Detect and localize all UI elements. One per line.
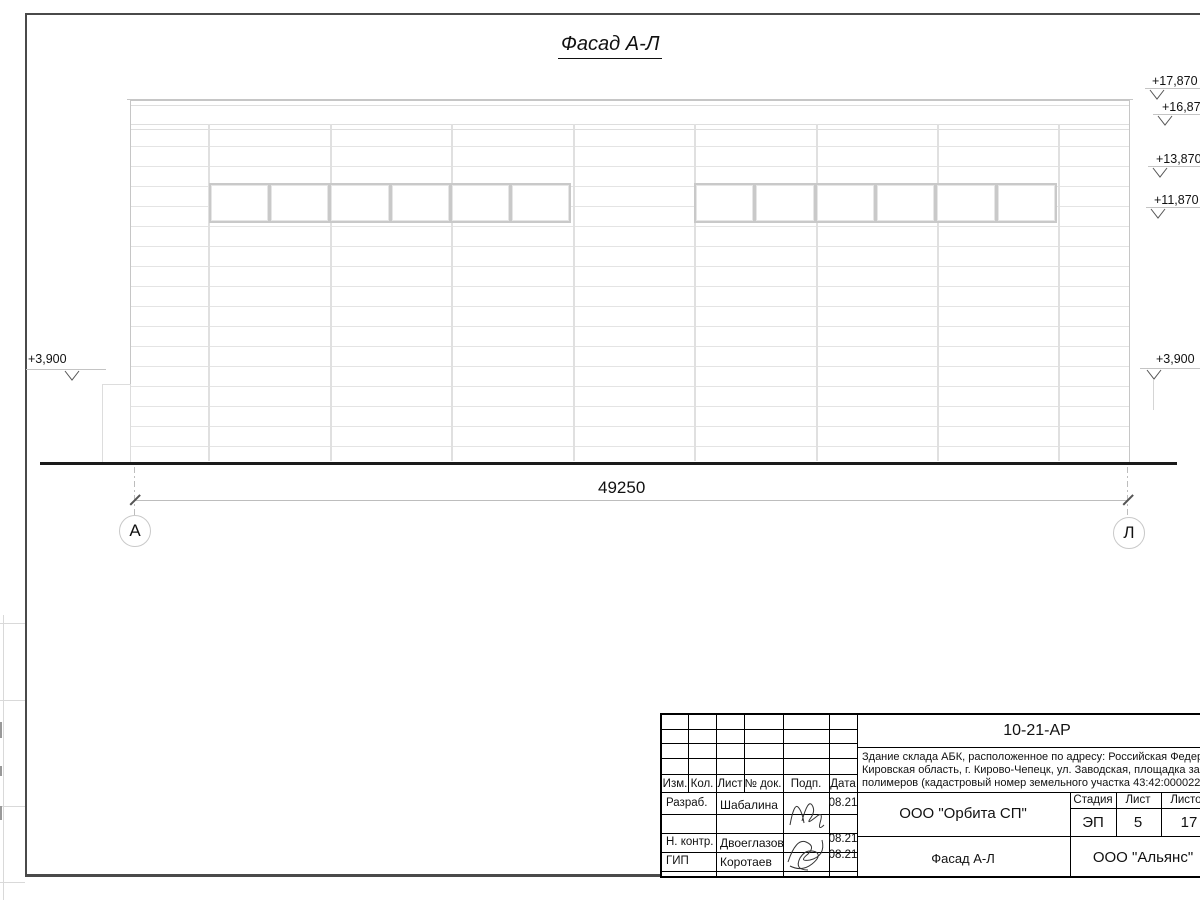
axis-bubble-left: А bbox=[119, 515, 151, 547]
panel-joint bbox=[573, 124, 575, 461]
side-stamp-line bbox=[0, 882, 25, 883]
side-stamp-line bbox=[0, 806, 25, 807]
elevation-arrow-icon bbox=[1157, 115, 1173, 126]
elevation-text: +3,900 bbox=[1156, 352, 1195, 366]
elevation-text: +3,900 bbox=[28, 352, 67, 366]
title-block: Изм. Кол. Лист № док. Подп. Дата Разраб.… bbox=[660, 713, 1200, 878]
tb-stage-label: Стадия bbox=[1073, 794, 1112, 806]
tb-rule bbox=[1116, 792, 1117, 836]
tb-role-razrab: Разраб. bbox=[666, 797, 707, 809]
window-pane bbox=[211, 185, 268, 221]
tb-rule bbox=[857, 747, 1200, 748]
side-stamp-text-fragment bbox=[0, 722, 2, 738]
tb-col-kol: Кол. bbox=[691, 778, 714, 790]
tb-role-nkontr: Н. контр. bbox=[666, 836, 713, 848]
panel-joint bbox=[208, 124, 210, 461]
tb-rule bbox=[1070, 808, 1200, 809]
side-stamp-line bbox=[0, 623, 25, 624]
tb-company: ООО "Альянс" bbox=[1093, 849, 1193, 866]
side-stamp-line bbox=[3, 615, 4, 900]
tb-col-list: Лист bbox=[718, 778, 743, 790]
sheet-frame-left bbox=[25, 13, 27, 877]
tb-date-3: 08.21 bbox=[829, 849, 858, 861]
parapet-line bbox=[131, 105, 1129, 106]
tb-sheet-value: 5 bbox=[1134, 814, 1142, 831]
axis-bubble-right: Л bbox=[1113, 517, 1145, 549]
tb-rule bbox=[662, 774, 857, 775]
tb-rule bbox=[662, 792, 857, 793]
tb-sheets-label: Листов bbox=[1170, 794, 1200, 806]
tb-description-line1: Здание склада АБК, расположенное по адре… bbox=[862, 751, 1200, 763]
window-band-right bbox=[694, 183, 1057, 223]
tb-org: ООО "Орбита СП" bbox=[899, 805, 1027, 822]
elevation-text: +17,870 bbox=[1152, 74, 1198, 88]
extension-line-right bbox=[1127, 467, 1128, 515]
window-pane bbox=[998, 185, 1055, 221]
panel-joint bbox=[330, 124, 332, 461]
parapet-line bbox=[131, 124, 1129, 125]
panel-joint bbox=[451, 124, 453, 461]
window-pane bbox=[756, 185, 813, 221]
elevation-text: +13,870 bbox=[1156, 152, 1200, 166]
tb-col-podp: Подп. bbox=[791, 778, 822, 790]
tb-sheets-value: 17 bbox=[1181, 814, 1198, 831]
window-pane bbox=[271, 185, 328, 221]
panel-joint bbox=[1058, 124, 1060, 461]
tb-rule bbox=[662, 758, 857, 759]
side-stamp-line bbox=[0, 700, 25, 701]
tb-rule bbox=[1161, 792, 1162, 836]
tb-stage-value: ЭП bbox=[1082, 814, 1104, 831]
panel-joint bbox=[937, 124, 939, 461]
window-pane bbox=[817, 185, 874, 221]
side-stamp-text-fragment bbox=[0, 806, 2, 820]
elevation-stub-line bbox=[1153, 380, 1154, 410]
elevation-arrow-icon bbox=[64, 370, 80, 381]
tb-col-data: Дата bbox=[830, 778, 855, 790]
window-pane bbox=[937, 185, 994, 221]
page-title: Фасад А-Л bbox=[558, 33, 662, 59]
tb-col-izm: Изм. bbox=[663, 778, 688, 790]
side-stamp-text-fragment bbox=[0, 766, 2, 776]
tb-date-1: 08.21 bbox=[829, 797, 858, 809]
elevation-text: +11,870 bbox=[1154, 193, 1199, 207]
parapet-cap bbox=[127, 99, 1133, 100]
window-pane bbox=[331, 185, 388, 221]
window-pane bbox=[512, 185, 569, 221]
elevation-arrow-icon bbox=[1146, 369, 1162, 380]
parapet-line bbox=[131, 129, 1129, 130]
extension-line-left bbox=[134, 467, 135, 517]
window-pane bbox=[392, 185, 449, 221]
tb-rule bbox=[857, 836, 1200, 837]
dimension-text: 49250 bbox=[598, 478, 645, 498]
tb-role-gip: ГИП bbox=[666, 855, 689, 867]
tb-rule bbox=[662, 743, 857, 744]
tb-name-dvoeglazov: Двоеглазов bbox=[720, 836, 784, 850]
tb-rule bbox=[662, 729, 857, 730]
elevation-text: +16,870 bbox=[1162, 100, 1200, 114]
elevation-arrow-icon bbox=[1150, 208, 1166, 219]
dimension-line bbox=[134, 500, 1128, 501]
tb-name-korotaev: Коротаев bbox=[720, 855, 772, 869]
window-band-left bbox=[209, 183, 571, 223]
tb-view-title: Фасад А-Л bbox=[931, 851, 995, 866]
tb-name-shabalina: Шабалина bbox=[720, 798, 778, 812]
tb-col-doc: № док. bbox=[745, 778, 782, 790]
ground-line bbox=[40, 462, 1177, 465]
tb-description-line2: Кировская область, г. Кирово-Чепецк, ул.… bbox=[862, 764, 1200, 776]
panel-joint bbox=[694, 124, 696, 461]
axis-label-left: А bbox=[129, 521, 140, 541]
elevation-arrow-icon bbox=[1149, 89, 1165, 100]
panel-joint bbox=[816, 124, 818, 461]
window-pane bbox=[696, 185, 753, 221]
tb-rule bbox=[688, 715, 689, 792]
entrance-porch bbox=[102, 384, 131, 462]
window-pane bbox=[877, 185, 934, 221]
sheet-frame-top bbox=[25, 13, 1200, 15]
tb-date-2: 08.21 bbox=[829, 833, 858, 845]
axis-label-right: Л bbox=[1123, 523, 1134, 543]
tb-rule bbox=[1070, 792, 1071, 876]
drawing-sheet: Фасад А-Л bbox=[0, 0, 1200, 900]
elevation-arrow-icon bbox=[1152, 167, 1168, 178]
tb-sheet-label: Лист bbox=[1126, 794, 1151, 806]
tb-description-line3: полимеров (кадастровый номер земельного … bbox=[862, 777, 1200, 789]
signature-icon bbox=[782, 828, 830, 874]
tb-rule bbox=[857, 792, 1200, 793]
tb-doc-number: 10-21-АР bbox=[1003, 722, 1071, 740]
window-pane bbox=[452, 185, 509, 221]
building-facade bbox=[130, 100, 1130, 462]
